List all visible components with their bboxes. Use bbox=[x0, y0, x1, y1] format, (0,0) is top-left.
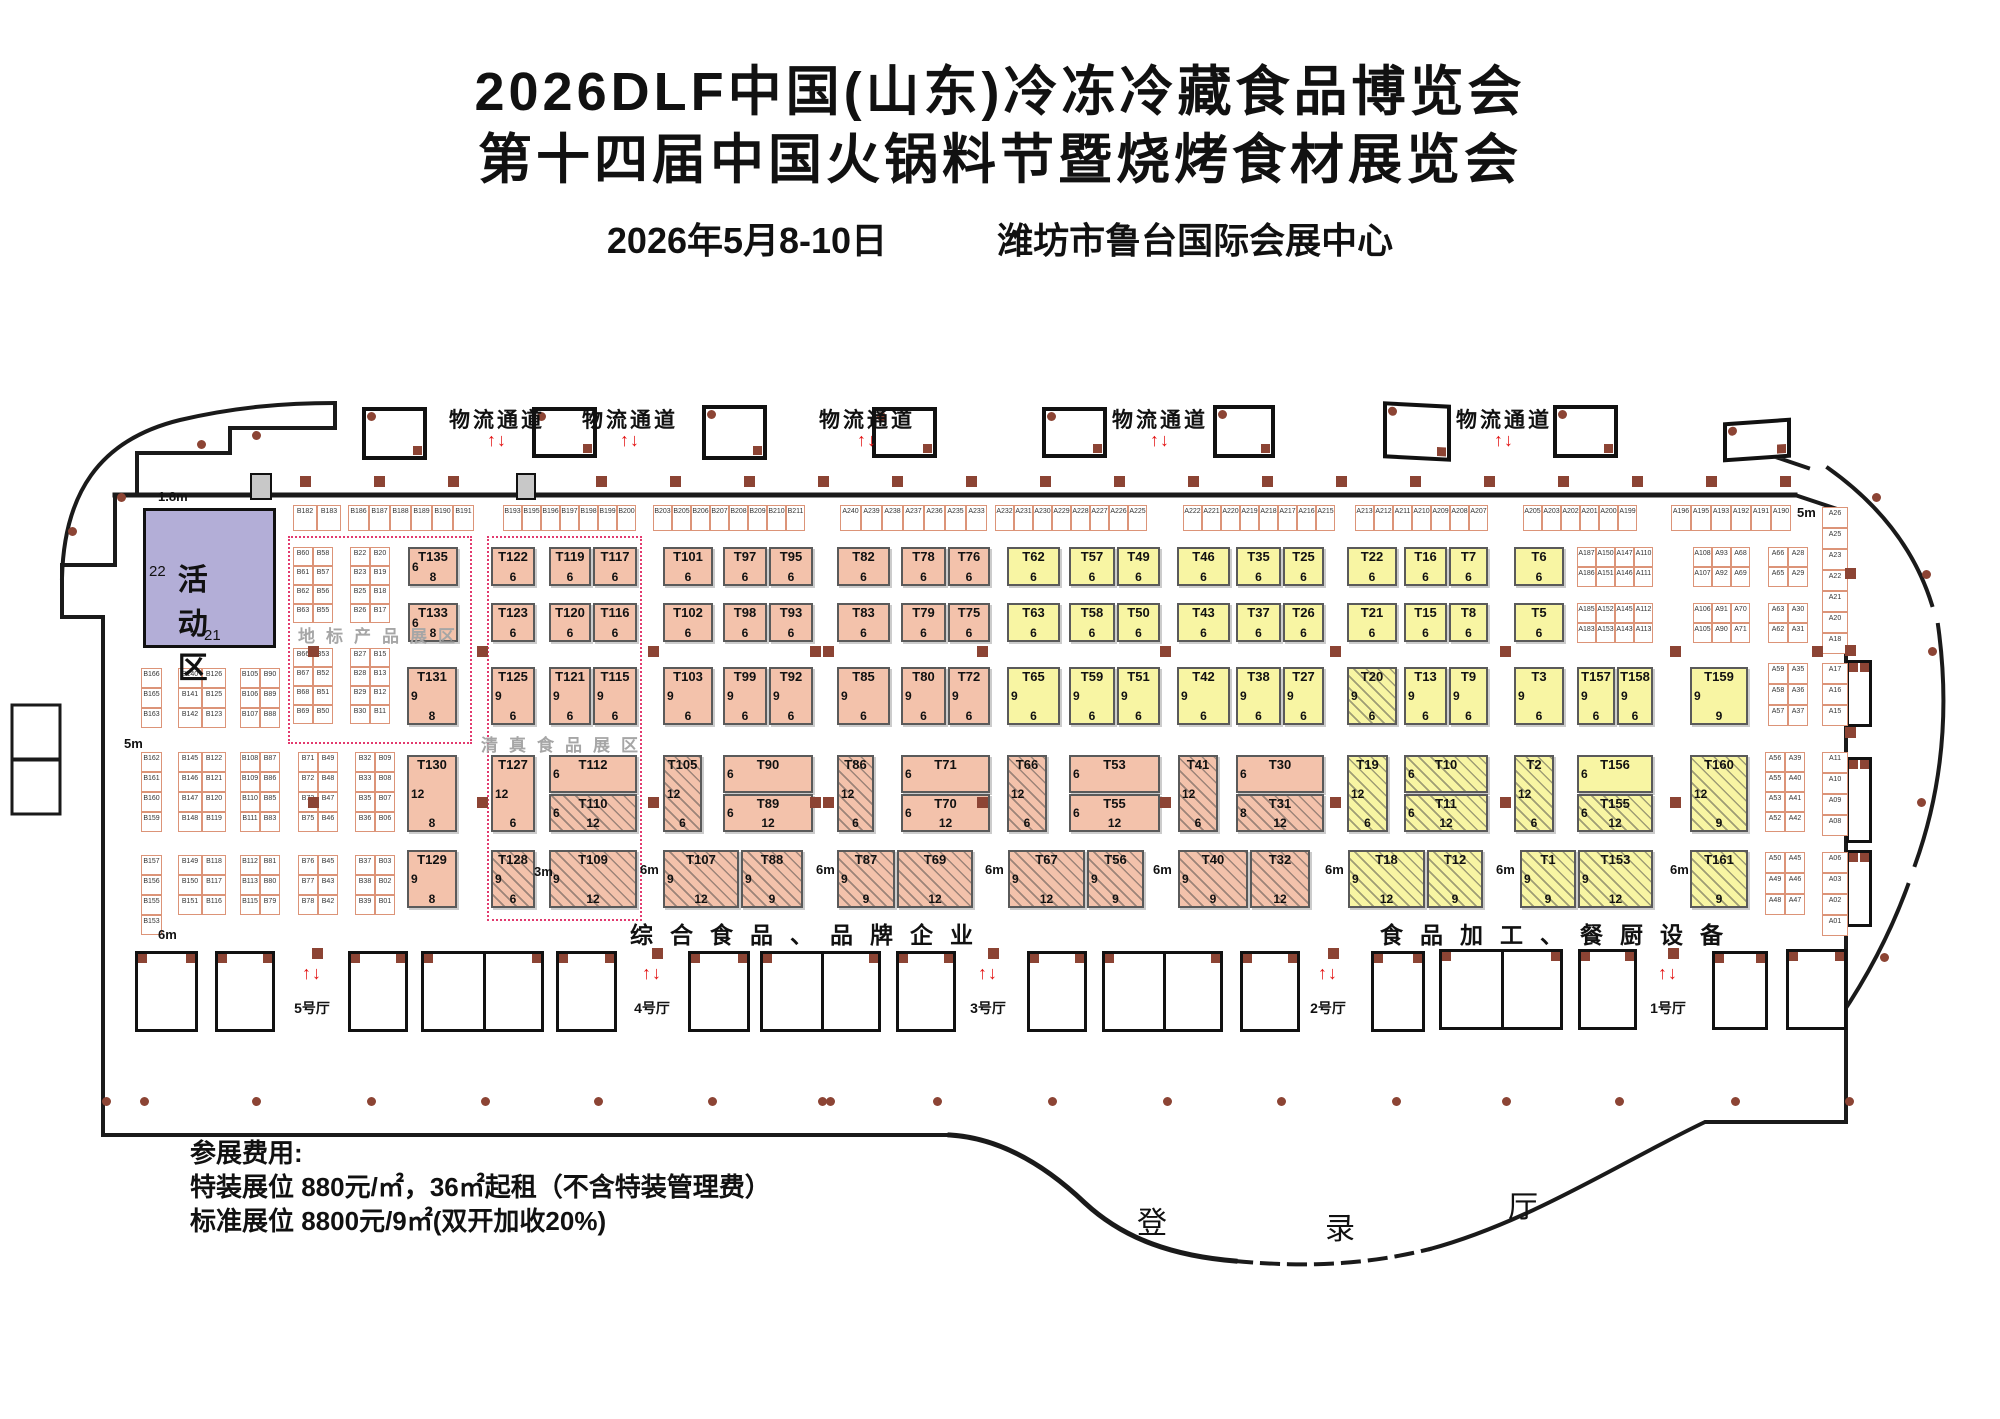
booth-T86: T86126 bbox=[837, 755, 874, 832]
booth-A207: A207 bbox=[1469, 505, 1488, 531]
booth-B11: B11 bbox=[370, 705, 390, 724]
booth-B83: B83 bbox=[260, 812, 280, 832]
booth-num: 6 bbox=[493, 709, 533, 723]
pillar-square-marker bbox=[823, 646, 834, 657]
booth-num: 12 bbox=[725, 816, 811, 830]
booth-label-T121: T121 bbox=[551, 669, 589, 684]
label-4号厅: 4号厅 bbox=[634, 998, 670, 1018]
booth-A69: A69 bbox=[1731, 567, 1750, 587]
booth-B117: B117 bbox=[202, 875, 226, 895]
booth-label-T49: T49 bbox=[1119, 549, 1158, 564]
pillar-dot-marker bbox=[1392, 1097, 1401, 1106]
booth-label-T157: T157 bbox=[1579, 669, 1613, 684]
booth-A212: A212 bbox=[1374, 505, 1393, 531]
booth-T46: T466 bbox=[1177, 547, 1230, 586]
booth-label-T26: T26 bbox=[1285, 605, 1322, 620]
pillar-square-marker bbox=[477, 646, 488, 657]
logistics-arrows-icon: ↑↓ bbox=[978, 963, 998, 984]
booth-label-T51: T51 bbox=[1119, 669, 1158, 684]
booth-num: 9 bbox=[745, 872, 752, 886]
booth-num: 6 bbox=[665, 709, 711, 723]
booth-T109: T109912 bbox=[549, 850, 637, 908]
booth-A237: A237 bbox=[903, 505, 924, 531]
booth-B62: B62 bbox=[293, 585, 313, 604]
booth-label-T6: T6 bbox=[1516, 549, 1562, 564]
booth-num: 6 bbox=[839, 709, 888, 723]
booth-B142: B142 bbox=[178, 708, 202, 728]
booth-A71: A71 bbox=[1731, 623, 1750, 643]
booth-label-T65: T65 bbox=[1009, 669, 1058, 684]
booth-B182: B182 bbox=[293, 505, 317, 531]
booth-num: 6 bbox=[1451, 709, 1486, 723]
booth-B111: B111 bbox=[240, 812, 260, 832]
booth-label-T161: T161 bbox=[1692, 852, 1746, 867]
booth-num: 9 bbox=[667, 689, 674, 703]
booth-label-T153: T153 bbox=[1580, 852, 1651, 867]
booth-num: 9 bbox=[1694, 689, 1701, 703]
booth-num: 9 bbox=[841, 689, 848, 703]
booth-A229: A229 bbox=[1052, 505, 1071, 531]
logistics-arrows-icon: ↑↓ bbox=[857, 430, 877, 451]
booth-label-T19: T19 bbox=[1349, 757, 1386, 772]
pillar-square-marker bbox=[1040, 476, 1051, 487]
booth-num: 6 bbox=[839, 816, 872, 830]
hall-door-3 bbox=[348, 951, 408, 1032]
booth-num: 6 bbox=[1349, 709, 1395, 723]
booth-B116: B116 bbox=[202, 895, 226, 915]
booth-A196: A196 bbox=[1671, 505, 1691, 531]
logistics-arrows-icon: ↑↓ bbox=[1658, 963, 1678, 984]
booth-label-T131: T131 bbox=[409, 669, 455, 684]
booth-label-T107: T107 bbox=[665, 852, 737, 867]
booth-num: 6 bbox=[1451, 626, 1486, 640]
booth-num: 9 bbox=[1182, 872, 1189, 886]
booth-B166: B166 bbox=[141, 668, 162, 688]
booth-label-T30: T30 bbox=[1238, 757, 1322, 772]
booth-label-T110: T110 bbox=[551, 796, 635, 811]
booth-T5: T56 bbox=[1514, 603, 1564, 642]
booth-B58: B58 bbox=[313, 547, 333, 566]
label-厅: 厅 bbox=[1508, 1182, 1538, 1226]
booth-A37: A37 bbox=[1788, 705, 1808, 726]
booth-num: 8 bbox=[409, 892, 455, 906]
booth-A209: A209 bbox=[1431, 505, 1450, 531]
booth-A190: A190 bbox=[1771, 505, 1791, 531]
booth-T8: T86 bbox=[1449, 603, 1488, 642]
booth-T82: T826 bbox=[837, 547, 890, 586]
booth-B87: B87 bbox=[260, 752, 280, 772]
booth-B108: B108 bbox=[240, 752, 260, 772]
booth-B203: B203 bbox=[653, 505, 672, 531]
booth-B145: B145 bbox=[178, 752, 202, 772]
booth-label-T75: T75 bbox=[950, 605, 988, 620]
booth-A231: A231 bbox=[1014, 505, 1033, 531]
label-6m: 6m bbox=[985, 862, 1004, 877]
booth-T155: T155612 bbox=[1577, 794, 1653, 832]
pillar-dot-marker bbox=[68, 527, 77, 536]
booth-B107: B107 bbox=[240, 708, 260, 728]
booth-A228: A228 bbox=[1071, 505, 1090, 531]
booth-label-T70: T70 bbox=[903, 796, 988, 811]
booth-label-T83: T83 bbox=[839, 605, 888, 620]
booth-B52: B52 bbox=[313, 667, 333, 686]
booth-label-T69: T69 bbox=[899, 852, 971, 867]
booth-label-T50: T50 bbox=[1119, 605, 1158, 620]
booth-B43: B43 bbox=[318, 875, 338, 895]
booth-B112: B112 bbox=[240, 855, 260, 875]
booth-num: 12 bbox=[667, 787, 680, 801]
booth-num: 6 bbox=[1451, 570, 1486, 584]
booth-num: 9 bbox=[1582, 872, 1589, 886]
booth-B26: B26 bbox=[350, 604, 370, 623]
booth-num: 6 bbox=[903, 626, 944, 640]
booth-label-T117: T117 bbox=[595, 549, 635, 564]
booth-num: 6 bbox=[1119, 626, 1158, 640]
booth-label-T99: T99 bbox=[725, 669, 765, 684]
booth-A226: A226 bbox=[1109, 505, 1128, 531]
booth-T71: T716 bbox=[901, 755, 990, 793]
booth-T26: T266 bbox=[1283, 603, 1324, 642]
booth-A203: A203 bbox=[1542, 505, 1561, 531]
booth-num: 6 bbox=[725, 570, 765, 584]
booth-A112: A112 bbox=[1634, 603, 1653, 623]
pillar-square-marker bbox=[1188, 476, 1199, 487]
booth-num: 6 bbox=[1071, 570, 1113, 584]
booth-B89: B89 bbox=[260, 688, 280, 708]
dock-box-9 bbox=[1723, 418, 1791, 463]
booth-num: 9 bbox=[1352, 872, 1359, 886]
activity-area-label: 活动区 bbox=[178, 555, 242, 687]
logistics-arrows-icon: ↑↓ bbox=[1494, 430, 1514, 451]
dock-box-3 bbox=[702, 405, 767, 460]
pillar-square-marker bbox=[1845, 645, 1856, 656]
pillar-square-marker bbox=[312, 948, 323, 959]
booth-B165: B165 bbox=[141, 688, 162, 708]
booth-A20: A20 bbox=[1822, 612, 1848, 633]
booth-T80: T8096 bbox=[901, 667, 946, 725]
pillar-dot-marker bbox=[102, 1097, 111, 1106]
booth-B159: B159 bbox=[141, 812, 162, 832]
booth-label-T95: T95 bbox=[771, 549, 811, 564]
label-地标产品展区: 地标产品展区 bbox=[298, 622, 466, 647]
booth-T116: T1166 bbox=[593, 603, 637, 642]
booth-B196: B196 bbox=[541, 505, 560, 531]
booth-A23: A23 bbox=[1822, 549, 1848, 570]
booth-T9: T996 bbox=[1449, 667, 1488, 725]
booth-label-T15: T15 bbox=[1406, 605, 1445, 620]
booth-A41: A41 bbox=[1785, 792, 1805, 812]
booth-T115: T11596 bbox=[593, 667, 637, 725]
booth-num: 12 bbox=[903, 816, 988, 830]
label-6m: 6m bbox=[1325, 862, 1344, 877]
booth-T37: T376 bbox=[1236, 603, 1281, 642]
booth-label-T22: T22 bbox=[1349, 549, 1395, 564]
booth-B187: B187 bbox=[369, 505, 390, 531]
booth-num: 6 bbox=[1406, 709, 1445, 723]
dock-box-8 bbox=[1553, 405, 1618, 458]
booth-A192: A192 bbox=[1731, 505, 1751, 531]
booth-label-T120: T120 bbox=[551, 605, 589, 620]
booth-T99: T9996 bbox=[723, 667, 767, 725]
label-6m: 6m bbox=[1670, 862, 1689, 877]
booth-A217: A217 bbox=[1278, 505, 1297, 531]
booth-A111: A111 bbox=[1634, 567, 1653, 587]
booth-A105: A105 bbox=[1693, 623, 1712, 643]
pillar-square-marker bbox=[1114, 476, 1125, 487]
booth-num: 6 bbox=[1285, 626, 1322, 640]
booth-B51: B51 bbox=[313, 686, 333, 705]
booth-T2: T2126 bbox=[1514, 755, 1554, 832]
booth-label-T5: T5 bbox=[1516, 605, 1562, 620]
booth-num: 9 bbox=[1692, 816, 1746, 830]
pillar-square-marker bbox=[308, 797, 319, 808]
booth-B197: B197 bbox=[560, 505, 579, 531]
pillar-square-marker bbox=[892, 476, 903, 487]
booth-num: 6 bbox=[1349, 626, 1395, 640]
pillar-square-marker bbox=[1845, 727, 1856, 738]
hall-door-14 bbox=[1578, 949, 1637, 1030]
pillar-square-marker bbox=[977, 797, 988, 808]
booth-label-T90: T90 bbox=[725, 757, 811, 772]
label-综合食品、品牌企业: 综合食品、品牌企业 bbox=[630, 916, 990, 950]
booth-num: 6 bbox=[1009, 816, 1045, 830]
booth-A150: A150 bbox=[1596, 547, 1615, 567]
pillar-dot-marker bbox=[1163, 1097, 1172, 1106]
booth-label-T103: T103 bbox=[665, 669, 711, 684]
booth-num: 6 bbox=[1179, 626, 1228, 640]
booth-T89: T89612 bbox=[723, 794, 813, 832]
label-2号厅: 2号厅 bbox=[1310, 998, 1346, 1018]
booth-num: 6 bbox=[905, 767, 912, 781]
booth-label-T89: T89 bbox=[725, 796, 811, 811]
booth-T95: T956 bbox=[769, 547, 813, 586]
booth-B02: B02 bbox=[375, 875, 395, 895]
booth-num: 6 bbox=[1285, 709, 1322, 723]
booth-T43: T436 bbox=[1177, 603, 1230, 642]
pillar-square-marker bbox=[1328, 948, 1339, 959]
booth-num: 6 bbox=[903, 570, 944, 584]
booth-label-T82: T82 bbox=[839, 549, 888, 564]
booth-T10: T106 bbox=[1404, 755, 1488, 793]
booth-num: 9 bbox=[1453, 689, 1460, 703]
booth-label-T72: T72 bbox=[950, 669, 988, 684]
pillar-square-marker bbox=[1484, 476, 1495, 487]
booth-label-T53: T53 bbox=[1071, 757, 1158, 772]
hall-door-8 bbox=[896, 951, 956, 1032]
booth-B193: B193 bbox=[503, 505, 522, 531]
booth-T98: T986 bbox=[723, 603, 767, 642]
booth-T103: T10396 bbox=[663, 667, 713, 725]
booth-T32: T3212 bbox=[1250, 850, 1310, 908]
booth-num: 6 bbox=[839, 626, 888, 640]
booth-B151: B151 bbox=[178, 895, 202, 915]
logistics-arrows-icon: ↑↓ bbox=[302, 963, 322, 984]
booth-T117: T1176 bbox=[593, 547, 637, 586]
booth-num: 9 bbox=[1524, 872, 1531, 886]
side-door-1 bbox=[1846, 660, 1872, 727]
booth-T76: T766 bbox=[948, 547, 990, 586]
booth-T59: T5996 bbox=[1069, 667, 1115, 725]
booth-label-T116: T116 bbox=[595, 605, 635, 620]
booth-num: 6 bbox=[1516, 626, 1562, 640]
booth-label-T31: T31 bbox=[1238, 796, 1322, 811]
booth-B68: B68 bbox=[293, 686, 313, 705]
pillar-dot-marker bbox=[1731, 1097, 1740, 1106]
pillar-dot-marker bbox=[826, 1097, 835, 1106]
booth-B207: B207 bbox=[710, 505, 729, 531]
booth-num: 12 bbox=[1351, 787, 1364, 801]
booth-num: 9 bbox=[1121, 689, 1128, 703]
booth-num: 6 bbox=[950, 626, 988, 640]
booth-label-T2: T2 bbox=[1516, 757, 1552, 772]
booth-T121: T12196 bbox=[549, 667, 591, 725]
pillar-dot-marker bbox=[1880, 953, 1889, 962]
booth-A199: A199 bbox=[1618, 505, 1637, 531]
booth-A92: A92 bbox=[1712, 567, 1731, 587]
booth-A232: A232 bbox=[995, 505, 1014, 531]
booth-num: 6 bbox=[1071, 626, 1113, 640]
booth-T130: T130128 bbox=[407, 755, 457, 832]
booth-A239: A239 bbox=[861, 505, 882, 531]
booth-B36: B36 bbox=[355, 812, 375, 832]
booth-num: 12 bbox=[1406, 816, 1486, 830]
pricing-heading: 参展费用: bbox=[190, 1136, 771, 1170]
booth-A187: A187 bbox=[1577, 547, 1596, 567]
booth-T51: T5196 bbox=[1117, 667, 1160, 725]
booth-B88: B88 bbox=[260, 708, 280, 728]
pillar-dot-marker bbox=[1277, 1097, 1286, 1106]
booth-label-T13: T13 bbox=[1406, 669, 1445, 684]
booth-A45: A45 bbox=[1785, 852, 1805, 873]
label-3m: 3m bbox=[534, 864, 553, 879]
booth-T41: T41126 bbox=[1178, 755, 1218, 832]
wall-right-arc-2 bbox=[1915, 625, 1943, 865]
logistics-arrows-icon: ↑↓ bbox=[642, 963, 662, 984]
booth-A235: A235 bbox=[945, 505, 966, 531]
pillar-square-marker bbox=[810, 797, 821, 808]
booth-T21: T216 bbox=[1347, 603, 1397, 642]
booth-T112: T1126 bbox=[549, 755, 637, 793]
booth-A143: A143 bbox=[1615, 623, 1634, 643]
pillar-square-marker bbox=[1558, 476, 1569, 487]
booth-num: 6 bbox=[1240, 767, 1247, 781]
booth-label-T37: T37 bbox=[1238, 605, 1279, 620]
booth-B39: B39 bbox=[355, 895, 375, 915]
hall-door-5 bbox=[556, 951, 617, 1032]
booth-B200: B200 bbox=[617, 505, 636, 531]
booth-B32: B32 bbox=[355, 752, 375, 772]
booth-B49: B49 bbox=[318, 752, 338, 772]
pillar-square-marker bbox=[1500, 797, 1511, 808]
booth-label-T71: T71 bbox=[903, 757, 988, 772]
booth-num: 12 bbox=[899, 892, 971, 906]
booth-A11: A11 bbox=[1822, 752, 1848, 773]
booth-A50: A50 bbox=[1765, 852, 1785, 873]
booth-B119: B119 bbox=[202, 812, 226, 832]
booth-B125: B125 bbox=[202, 688, 226, 708]
booth-label-T12: T12 bbox=[1429, 852, 1481, 867]
side-door-2 bbox=[1846, 757, 1872, 843]
booth-T107: T107912 bbox=[663, 850, 739, 908]
booth-label-T101: T101 bbox=[665, 549, 711, 564]
booth-B110: B110 bbox=[240, 792, 260, 812]
booth-A110: A110 bbox=[1634, 547, 1653, 567]
booth-num: 9 bbox=[1408, 689, 1415, 703]
booth-num: 9 bbox=[727, 689, 734, 703]
booth-B189: B189 bbox=[411, 505, 432, 531]
booth-label-T67: T67 bbox=[1010, 852, 1083, 867]
booth-label-T98: T98 bbox=[725, 605, 765, 620]
pricing-block: 参展费用: 特装展位 880元/㎡，36㎡起租（不含特装管理费） 标准展位 88… bbox=[190, 1136, 771, 1238]
pillar-dot-marker bbox=[367, 1097, 376, 1106]
booth-A16: A16 bbox=[1822, 684, 1848, 705]
booth-A03: A03 bbox=[1822, 873, 1848, 894]
booth-label-T16: T16 bbox=[1406, 549, 1445, 564]
booth-B163: B163 bbox=[141, 708, 162, 728]
booth-A183: A183 bbox=[1577, 623, 1596, 643]
booth-B18: B18 bbox=[370, 585, 390, 604]
booth-label-T7: T7 bbox=[1451, 549, 1486, 564]
pillar-square-marker bbox=[1812, 646, 1823, 657]
booth-num: 6 bbox=[771, 570, 811, 584]
booth-T69: T6912 bbox=[897, 850, 973, 908]
pillar-dot-marker bbox=[933, 1097, 942, 1106]
wall-bottom-right bbox=[1430, 1026, 1846, 1249]
booth-B30: B30 bbox=[350, 705, 370, 724]
pillar-dot-marker bbox=[1502, 1097, 1511, 1106]
booth-B01: B01 bbox=[375, 895, 395, 915]
booth-num: 6 bbox=[725, 709, 765, 723]
label-5m: 5m bbox=[1797, 505, 1816, 520]
booth-num: 6 bbox=[665, 626, 711, 640]
pillar-square-marker bbox=[1330, 646, 1341, 657]
activity-num-bottom: 21 bbox=[204, 627, 221, 644]
pricing-line1: 特装展位 880元/㎡，36㎡起租（不含特装管理费） bbox=[190, 1170, 771, 1204]
booth-B79: B79 bbox=[260, 895, 280, 915]
booth-B85: B85 bbox=[260, 792, 280, 812]
booth-A63: A63 bbox=[1768, 603, 1788, 623]
booth-T15: T156 bbox=[1404, 603, 1447, 642]
booth-num: 6 bbox=[1073, 767, 1080, 781]
booth-T153: T153912 bbox=[1578, 850, 1653, 908]
booth-B211: B211 bbox=[786, 505, 805, 531]
booth-num: 6 bbox=[1179, 709, 1228, 723]
booth-B20: B20 bbox=[370, 547, 390, 566]
booth-label-T129: T129 bbox=[409, 852, 455, 867]
pillar-dot-marker bbox=[1872, 493, 1881, 502]
booth-num: 12 bbox=[1010, 892, 1083, 906]
booth-T122: T1226 bbox=[491, 547, 535, 586]
pillar-dot-marker bbox=[1922, 570, 1931, 579]
booth-num: 9 bbox=[667, 872, 674, 886]
booth-B15: B15 bbox=[370, 648, 390, 667]
booth-num: 9 bbox=[1692, 709, 1746, 723]
booth-num: 6 bbox=[1119, 709, 1158, 723]
booth-label-T115: T115 bbox=[595, 669, 635, 684]
booth-A193: A193 bbox=[1711, 505, 1731, 531]
booth-num: 9 bbox=[1089, 892, 1142, 906]
booth-A151: A151 bbox=[1596, 567, 1615, 587]
pillar-square-marker bbox=[652, 948, 663, 959]
booth-T129: T12998 bbox=[407, 850, 457, 908]
booth-A31: A31 bbox=[1788, 623, 1808, 643]
booth-A58: A58 bbox=[1768, 684, 1788, 705]
booth-A29: A29 bbox=[1788, 567, 1808, 587]
booth-T38: T3896 bbox=[1236, 667, 1281, 725]
dock-box-6 bbox=[1213, 405, 1275, 458]
booth-T102: T1026 bbox=[663, 603, 713, 642]
booth-num: 6 bbox=[950, 709, 988, 723]
